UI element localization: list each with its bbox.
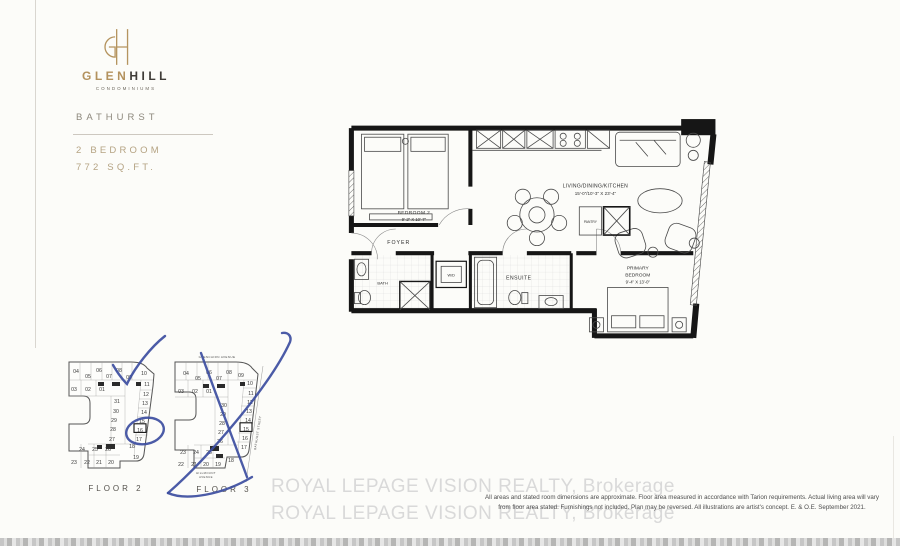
project-location: BATHURST — [76, 112, 159, 123]
page-fold-line — [35, 0, 36, 348]
wd-label: W/D — [448, 273, 456, 277]
disclaimer-line-2: from floor area stated. Furnishings not … — [470, 503, 894, 513]
unit-number: 17 — [136, 437, 142, 443]
bedroom2-label: BEDROOM 2 — [398, 210, 431, 216]
brand-name-hill: HILL — [129, 69, 170, 83]
unit-number: 22 — [84, 460, 90, 466]
window-band-right — [690, 161, 710, 305]
unit-number: 25 — [92, 447, 98, 453]
unit-number: 07 — [216, 376, 222, 382]
unit-number: 23 — [71, 460, 77, 466]
primary-bedroom-furniture — [589, 287, 686, 331]
unit-area: 772 SQ.FT. — [76, 162, 156, 173]
unit-number: 12 — [143, 392, 149, 398]
unit-number: 26 — [105, 447, 111, 453]
street-label-glencairn: GLENCAIRN AVENUE — [199, 355, 236, 359]
primary-dims: 9'-4" X 13'-0" — [626, 279, 651, 284]
floor-2-caption: FLOOR 2 — [66, 484, 166, 493]
unit-number: 16 — [242, 436, 248, 442]
unit-number: 19 — [215, 462, 221, 468]
unit-number: 30 — [113, 409, 119, 415]
unit-number: 06 — [96, 368, 102, 374]
window-band-left — [349, 171, 354, 216]
pantry-label: PANTRY — [584, 220, 598, 224]
monogram-h — [117, 29, 128, 65]
divider-rule — [73, 134, 213, 135]
unit-number: 13 — [142, 401, 148, 407]
scan-edge-strip — [0, 538, 900, 546]
keyplan-floor-2: 0405060708091003020111121314151617181931… — [63, 356, 163, 481]
unit-number: 22 — [178, 462, 184, 468]
unit-number: 15 — [243, 427, 249, 433]
unit-number: 10 — [247, 381, 253, 387]
unit-number: 08 — [226, 370, 232, 376]
keyplan-floor-3: GLENCAIRN AVENUE BATHURST STREET HILLMOU… — [170, 350, 276, 490]
brand-name: GLENHILL — [66, 69, 186, 83]
floor-3-caption: FLOOR 3 — [174, 485, 274, 494]
unit-number: 31 — [114, 399, 120, 405]
unit-number: 24 — [193, 450, 199, 456]
unit-number: 19 — [133, 455, 139, 461]
foyer-label: FOYER — [387, 240, 410, 246]
kitchen-counter — [472, 130, 609, 150]
unit-number: 21 — [96, 460, 102, 466]
unit-number: 21 — [191, 462, 197, 468]
unit-number: 17 — [241, 445, 247, 451]
ensuite-tile-floor — [472, 255, 569, 308]
unit-number: 16 — [137, 428, 143, 434]
primary-label-2: BEDROOM — [625, 272, 650, 278]
unit-number: 11 — [248, 391, 253, 397]
unit-number: 04 — [73, 369, 79, 375]
bedroom2-furniture — [361, 134, 448, 220]
unit-number: 23 — [180, 450, 186, 456]
unit-type: 2 BEDROOM — [76, 145, 162, 156]
disclaimer-line-1: All areas and stated room dimensions are… — [470, 493, 894, 503]
unit-number: 01 — [206, 389, 212, 395]
monogram-g — [105, 37, 115, 57]
unit-number: 30 — [221, 403, 227, 409]
street-label-bathurst: BATHURST STREET — [253, 415, 262, 450]
unit-number: 02 — [85, 387, 91, 393]
street-label-hillmount-2: AVENUE — [199, 475, 213, 479]
primary-label-1: PRIMARY — [627, 265, 650, 271]
unit-number: 18 — [129, 444, 135, 450]
unit-number: 02 — [192, 389, 198, 395]
brand-name-glen: GLEN — [82, 69, 129, 83]
living-dims: 15'-0"/10'-3" X 23'-4" — [575, 191, 617, 196]
dining-table — [507, 189, 567, 245]
unit-number: 04 — [183, 371, 189, 377]
unit-number: 05 — [195, 376, 201, 382]
unit-number: 03 — [178, 389, 184, 395]
unit-number: 09 — [126, 375, 132, 381]
unit-number: 20 — [108, 460, 114, 466]
unit-number: 27 — [109, 437, 115, 443]
unit-number: 29 — [111, 418, 117, 424]
unit-number: 09 — [238, 373, 244, 379]
unit-number: 07 — [106, 374, 112, 380]
unit-number: 03 — [71, 387, 77, 393]
disclaimer-text: All areas and stated room dimensions are… — [470, 493, 894, 512]
ensuite-label: ENSUITE — [506, 275, 531, 281]
floor-plan-drawing: BEDROOM 2 9'-2" X 10'-7" LIVING/DINING/K… — [341, 110, 745, 348]
unit-number: 11 — [144, 382, 149, 388]
unit-number: 28 — [110, 427, 116, 433]
unit-number: 12 — [247, 400, 253, 406]
bedroom2-dims: 9'-2" X 10'-7" — [402, 217, 427, 222]
unit-number: 08 — [116, 368, 122, 374]
brand-tagline: CONDOMINIUMS — [66, 86, 186, 91]
unit-number: 18 — [228, 458, 234, 464]
bath-label: BATH — [377, 280, 388, 285]
unit-number: 29 — [220, 412, 226, 418]
glenhill-monogram-logo — [88, 26, 136, 68]
unit-number: 13 — [246, 409, 252, 415]
scan-edge-line — [893, 436, 894, 546]
unit-number: 25 — [206, 450, 212, 456]
unit-number: 27 — [218, 430, 224, 436]
living-label: LIVING/DINING/KITCHEN — [563, 184, 628, 190]
unit-number: 01 — [99, 387, 105, 393]
unit-number: 20 — [203, 462, 209, 468]
unit-number: 26 — [217, 439, 223, 445]
unit-number: 14 — [141, 410, 147, 416]
living-furniture — [613, 132, 700, 260]
unit-number: 05 — [85, 374, 91, 380]
unit-number: 28 — [219, 421, 225, 427]
unit-number: 10 — [141, 371, 147, 377]
unit-number: 06 — [206, 370, 212, 376]
unit-number: 24 — [79, 447, 85, 453]
